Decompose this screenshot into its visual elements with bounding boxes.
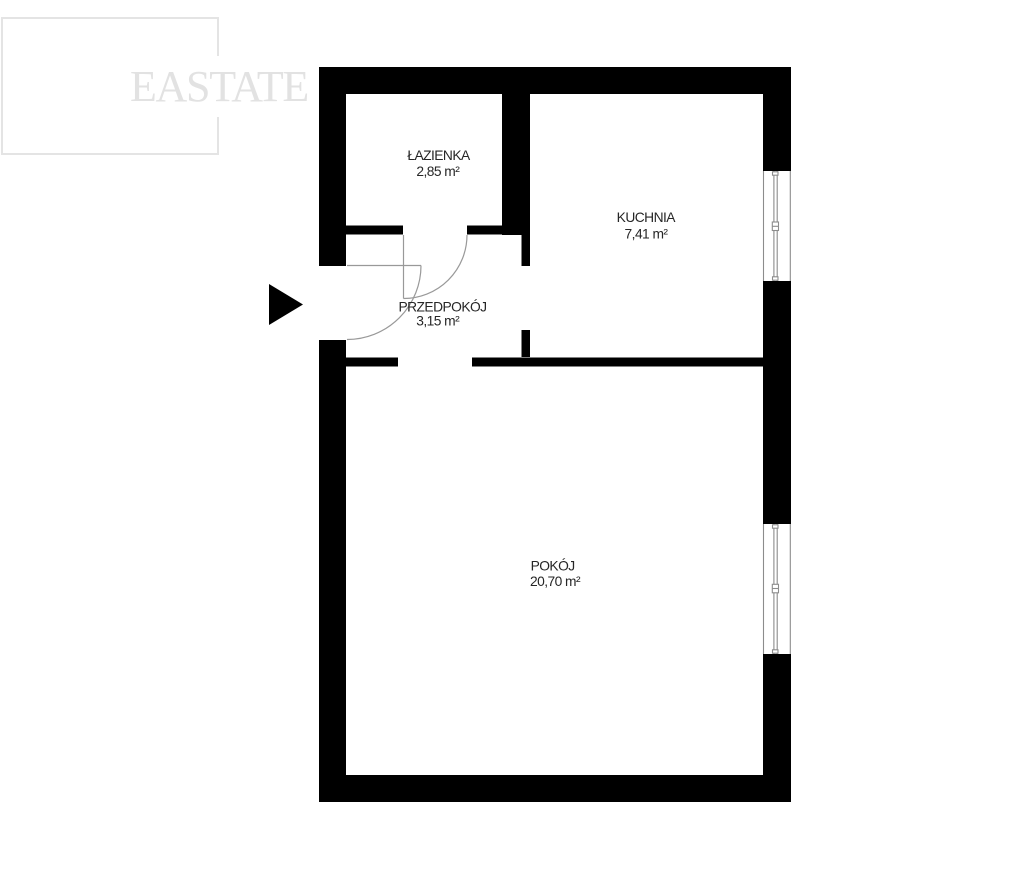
svg-text:PRZEDPOKÓJ: PRZEDPOKÓJ <box>398 299 486 315</box>
svg-text:ŁAZIENKA: ŁAZIENKA <box>407 148 471 163</box>
svg-text:3,15 m²: 3,15 m² <box>416 313 460 328</box>
svg-text:POKÓJ: POKÓJ <box>531 557 575 573</box>
svg-text:7,41 m²: 7,41 m² <box>625 227 669 242</box>
svg-text:EASTATE: EASTATE <box>130 62 308 111</box>
svg-text:20,70 m²: 20,70 m² <box>530 574 581 589</box>
svg-text:2,85 m²: 2,85 m² <box>416 164 460 179</box>
svg-text:KUCHNIA: KUCHNIA <box>617 210 677 225</box>
